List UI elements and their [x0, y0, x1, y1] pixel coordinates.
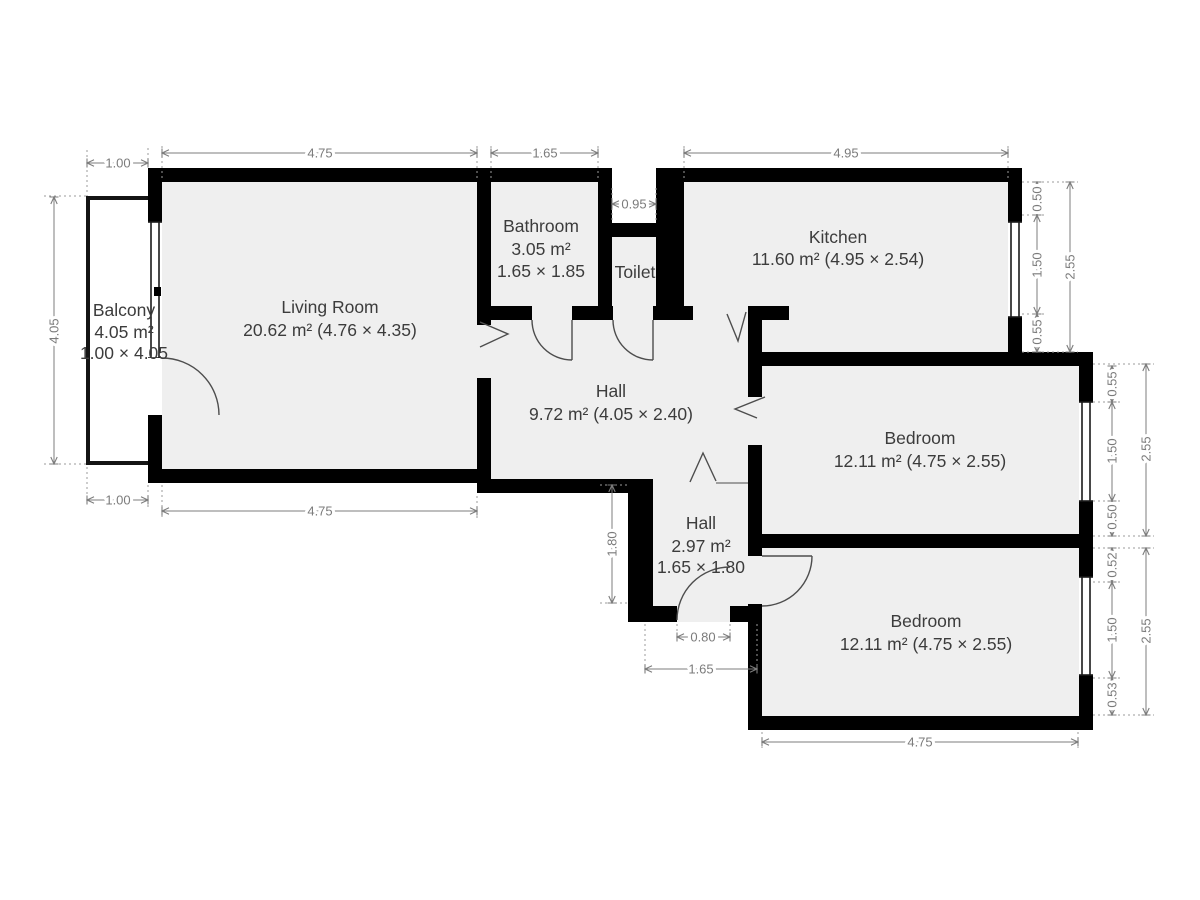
room-name: Bedroom [884, 428, 955, 448]
dim-label: 1.50 [1105, 617, 1120, 642]
room-name: Living Room [281, 297, 378, 317]
room-area-size: 9.72 m² (4.05 × 2.40) [529, 404, 693, 424]
room-area-size: 20.62 m² (4.76 × 4.35) [243, 320, 417, 340]
dim-bottom-bedroom-width: 4.75 [762, 735, 1078, 750]
dim-label: 1.00 [105, 493, 130, 508]
dim-label: 0.52 [1105, 552, 1120, 577]
room-area: 3.05 m² [511, 239, 570, 259]
dim-label: 0.55 [1030, 319, 1045, 344]
dim-label: 0.53 [1105, 682, 1120, 707]
floor-plan: 1.00 4.75 1.65 0.95 4.95 4.05 1.00 4.75 [0, 0, 1200, 900]
dim-label: 4.75 [907, 735, 932, 750]
room-name: Hall [596, 381, 626, 401]
dim-label: 1.80 [605, 531, 620, 556]
dim-top-bathroom-width: 1.65 [491, 146, 598, 161]
dim-label: 0.50 [1105, 504, 1120, 529]
dim-label: 1.50 [1105, 438, 1120, 463]
room-size: 1.00 × 4.05 [80, 343, 168, 363]
window-bedroom-bottom [1079, 577, 1093, 675]
dim-bottom-left-living-width: 4.75 [162, 504, 477, 519]
room-size: 1.65 × 1.80 [657, 557, 745, 577]
dim-label: 4.95 [833, 146, 858, 161]
dim-right-bedroom-bottom: 0.52 1.50 0.53 2.55 [1105, 548, 1154, 715]
room-name: Bedroom [890, 611, 961, 631]
dim-label: 1.65 [532, 146, 557, 161]
room-name: Toilet [615, 262, 656, 282]
dim-toilet-recess-width: 0.95 [612, 197, 656, 212]
room-name: Kitchen [809, 227, 867, 247]
dim-label: 0.80 [690, 630, 715, 645]
window-bedroom-top [1079, 402, 1093, 501]
room-area: 4.05 m² [94, 322, 153, 342]
dim-label: 1.00 [105, 156, 130, 171]
room-label-toilet: Toilet [615, 262, 656, 282]
room-name: Bathroom [503, 216, 579, 236]
dim-label: 0.55 [1105, 371, 1120, 396]
room-area-size: 12.11 m² (4.75 × 2.55) [840, 634, 1012, 654]
room-area: 2.97 m² [671, 536, 730, 556]
room-area-size: 11.60 m² (4.95 × 2.54) [752, 249, 924, 269]
room-floor-bedroom-top [762, 352, 1079, 548]
dim-label: 1.50 [1030, 252, 1045, 277]
dim-right-bedroom-top: 0.55 1.50 0.50 2.55 [1105, 364, 1154, 536]
dim-label: 1.65 [688, 662, 713, 677]
room-name: Hall [686, 513, 716, 533]
dim-label: 2.55 [1063, 254, 1078, 279]
window-kitchen [1008, 222, 1022, 317]
dim-label: 0.50 [1030, 186, 1045, 211]
dim-top-living-width: 4.75 [162, 146, 477, 161]
dim-label: 0.95 [621, 197, 646, 212]
dim-right-kitchen: 0.50 1.50 0.55 2.55 [1030, 182, 1078, 352]
dim-left-balcony-height: 4.05 [47, 197, 62, 464]
dim-top-kitchen-width: 4.95 [684, 146, 1008, 161]
room-area-size: 12.11 m² (4.75 × 2.55) [834, 451, 1006, 471]
dim-bottom-left-balcony-width: 1.00 [87, 493, 148, 508]
dim-label: 4.75 [307, 146, 332, 161]
room-size: 1.65 × 1.85 [497, 261, 585, 281]
room-floor-bedroom-bottom [762, 534, 1079, 730]
dim-label: 4.05 [47, 318, 62, 343]
dim-label: 4.75 [307, 504, 332, 519]
dim-label: 2.55 [1139, 436, 1154, 461]
dim-label: 2.55 [1139, 618, 1154, 643]
dim-top-balcony-width: 1.00 [87, 156, 148, 171]
room-name: Balcony [93, 300, 156, 320]
